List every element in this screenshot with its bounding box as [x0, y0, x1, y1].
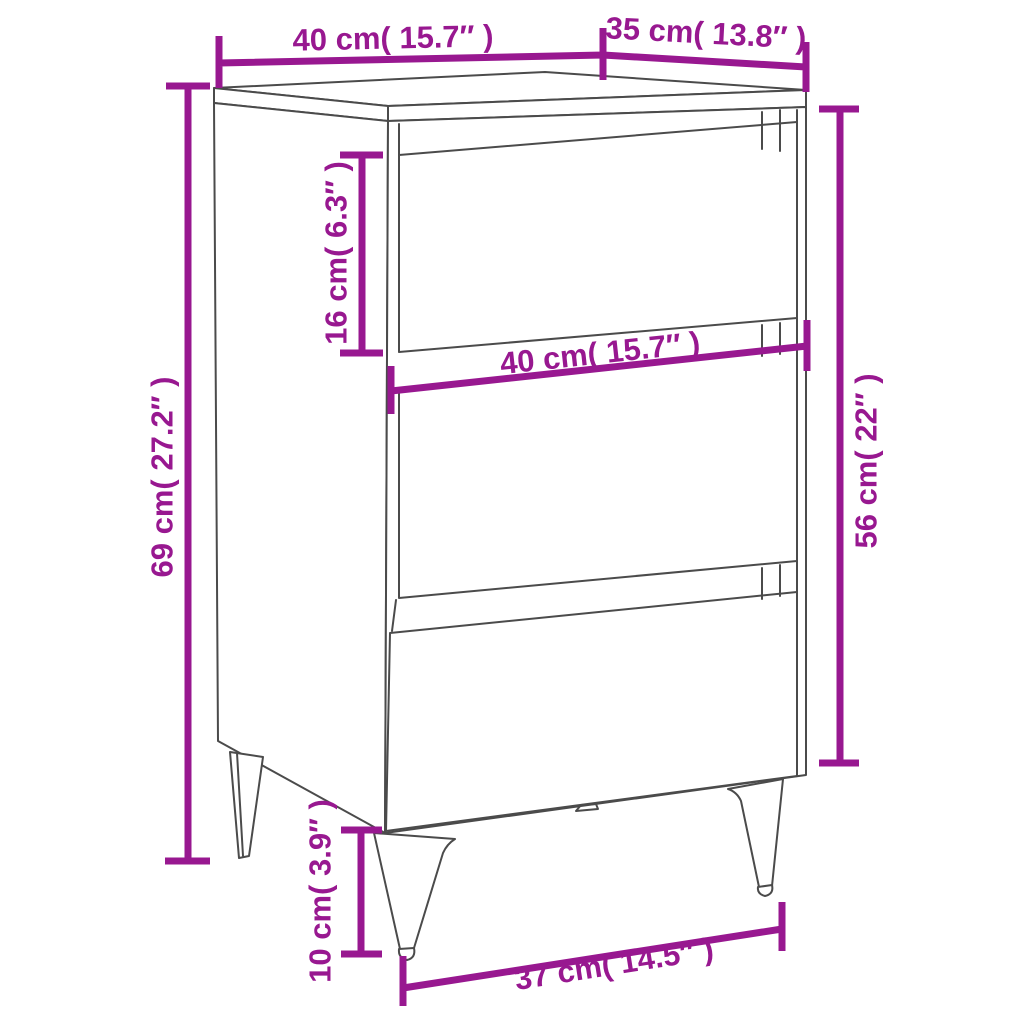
- drawer-1-front: [399, 122, 797, 352]
- drawer-3-front: [386, 592, 797, 831]
- dim-bottom-width-label: 37 cm( 14.5″ ): [512, 931, 716, 997]
- dim-leg-height-label: 10 cm( 3.9″ ): [303, 799, 338, 983]
- leg-front-left: [374, 833, 455, 960]
- dim-bottom-width: 37 cm( 14.5″ ): [403, 902, 782, 1006]
- leg-front-right: [728, 779, 783, 896]
- dim-total-height: 69 cm( 27.2″ ): [145, 86, 211, 861]
- dim-body-height: 56 cm( 22″ ): [819, 109, 884, 763]
- dim-total-height-label: 69 cm( 27.2″ ): [145, 377, 180, 578]
- dim-top-depth-label: 35 cm( 13.8″ ): [605, 10, 808, 55]
- diagram-canvas: 40 cm( 15.7″ ) 35 cm( 13.8″ ) 69 cm( 27.…: [0, 0, 1024, 1024]
- dim-top-width-label: 40 cm( 15.7″ ): [292, 18, 494, 58]
- dim-drawer-height-label: 16 cm( 6.3″ ): [319, 161, 354, 345]
- dim-leg-height: 10 cm( 3.9″ ): [303, 799, 383, 983]
- leg-front-right-foot: [758, 885, 772, 896]
- leg-back-left: [230, 752, 263, 858]
- dimension-diagram: 40 cm( 15.7″ ) 35 cm( 13.8″ ) 69 cm( 27.…: [0, 0, 1024, 1024]
- dim-body-height-label: 56 cm( 22″ ): [849, 373, 884, 548]
- dim-leg-height-line: [341, 830, 382, 954]
